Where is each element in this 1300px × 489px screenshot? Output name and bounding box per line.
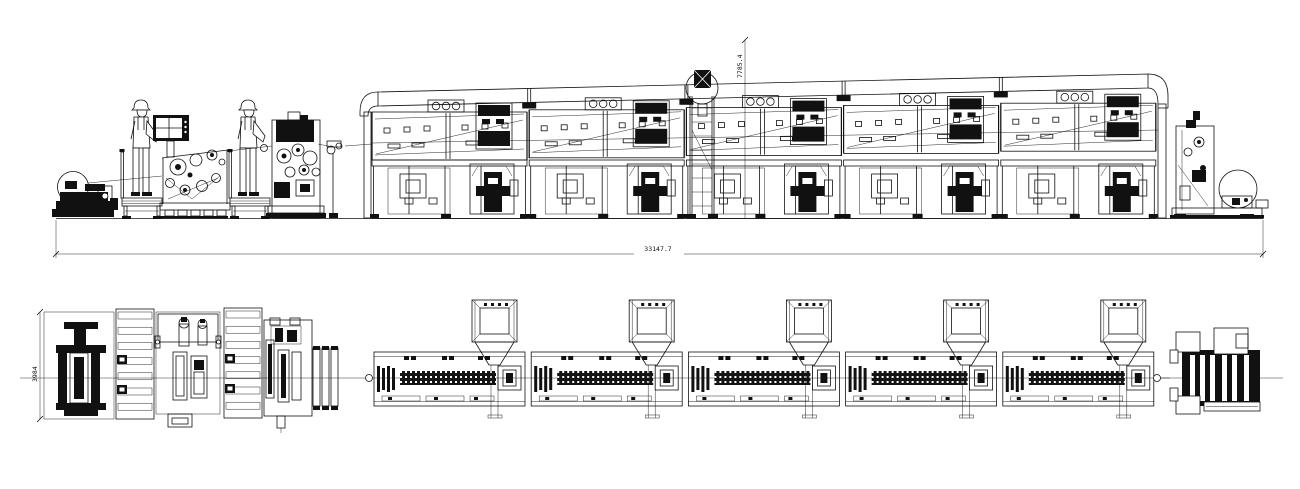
operator-platform-1 (120, 149, 163, 219)
control-monitor (153, 115, 189, 157)
oven-module (370, 160, 529, 219)
drawing-canvas: 33147.7 7785.4 3984 (0, 0, 1300, 489)
width-label: 3984 (31, 366, 39, 382)
cad-drawing: 33147.7 7785.4 3984 (0, 0, 1300, 489)
oven-module (374, 300, 525, 418)
oven-module (684, 160, 843, 219)
walkway-2-plan (224, 308, 262, 418)
oven-module (844, 93, 999, 153)
oven-module (529, 98, 684, 158)
dimension-width: 3984 (31, 309, 43, 422)
oven-module (372, 100, 527, 160)
plan-view: 3984 (20, 300, 1283, 433)
oven-elevation (360, 70, 1168, 219)
oven-module (842, 160, 1001, 219)
oven-modules-upper (372, 91, 1156, 160)
coating-unit-elevation (261, 112, 343, 218)
rewinder-plan (1161, 328, 1260, 414)
oven-modules-lower (370, 160, 1158, 219)
oven-module (688, 300, 839, 418)
dimension-total-length: 33147.7 (53, 220, 1266, 258)
web-processor-elevation (160, 150, 230, 219)
oven-module (846, 300, 997, 418)
operator-figure (131, 100, 158, 196)
total-length-label: 33147.7 (644, 245, 671, 253)
unwinder-elevation (52, 172, 118, 218)
operators-elevation (131, 100, 265, 196)
oven-right-end-panel (1158, 104, 1166, 218)
oven-module (686, 96, 841, 156)
oven-module (999, 160, 1158, 219)
operator-platform-2 (228, 149, 271, 219)
elevation-view: 33147.7 7785.4 (52, 37, 1268, 258)
oven-module (527, 160, 686, 219)
coating-unit-plan (264, 318, 338, 433)
oven-outlet-flange (1154, 375, 1161, 382)
oven-module (1001, 91, 1156, 151)
dimension-height: 7785.4 (736, 37, 748, 218)
walkway-1-plan (116, 309, 154, 419)
oven-module (531, 300, 682, 418)
height-label: 7785.4 (736, 54, 744, 78)
oven-module (1003, 300, 1154, 418)
oven-left-end-panel (364, 112, 371, 218)
web-processor-plan (155, 312, 221, 427)
oven-plan (374, 300, 1154, 418)
unwind-stand-plan (44, 312, 114, 419)
rewinder-elevation (1170, 111, 1268, 219)
oven-inlet-flange (366, 375, 373, 382)
